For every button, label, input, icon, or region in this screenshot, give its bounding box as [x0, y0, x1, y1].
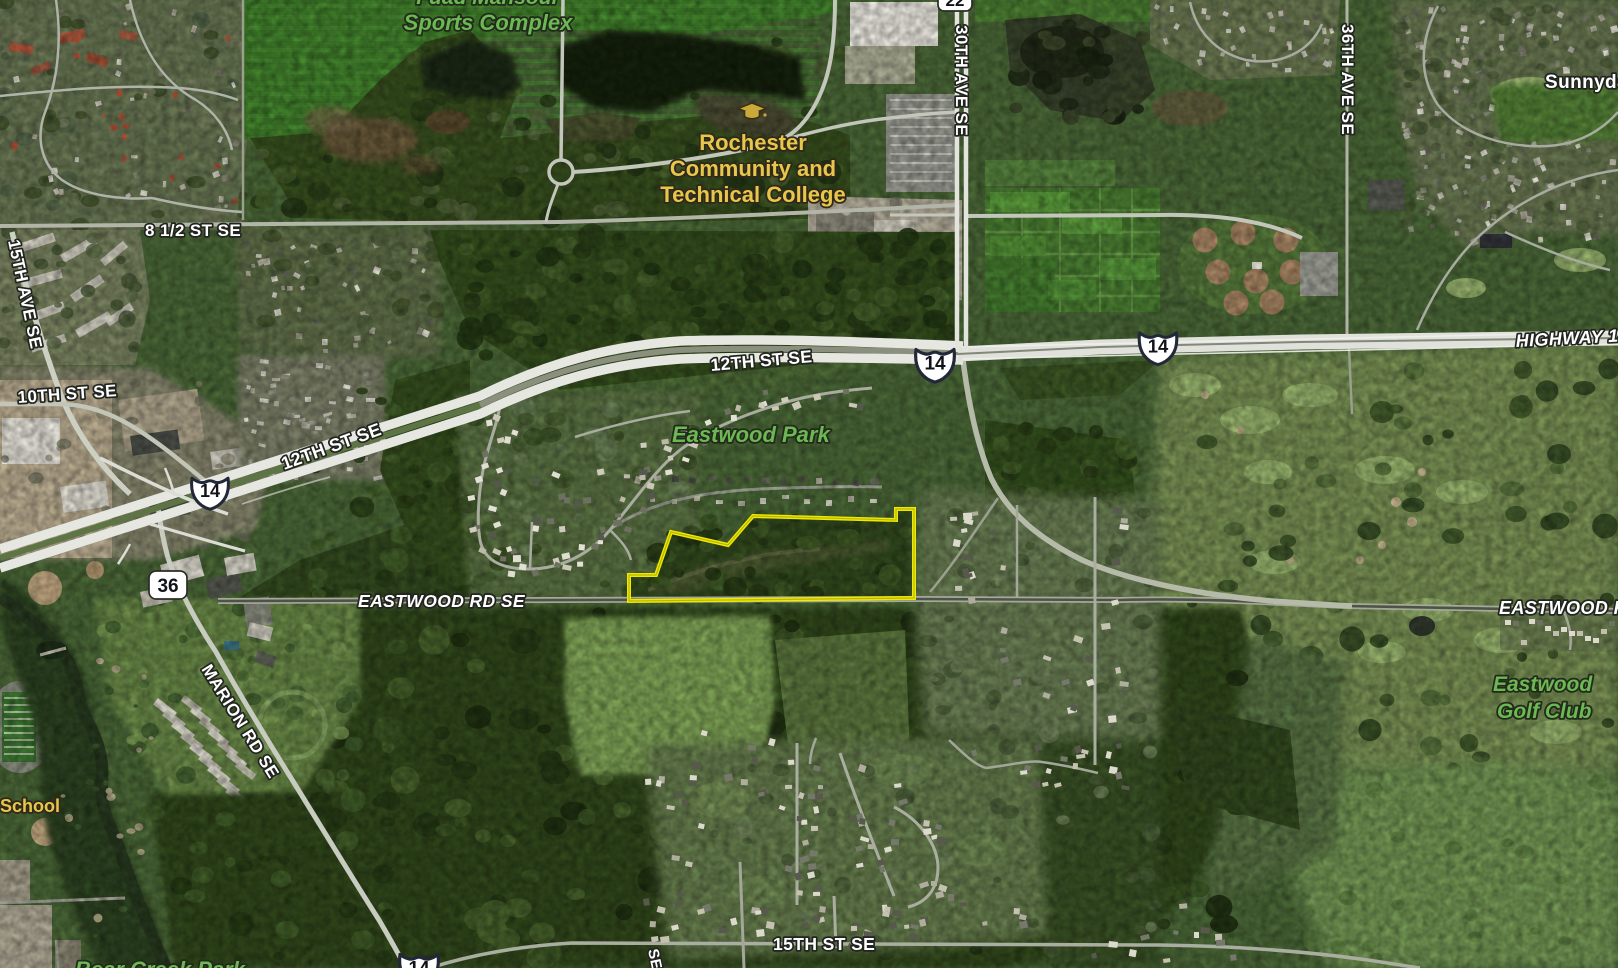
svg-text:Sunnydale: Sunnydale [1545, 72, 1618, 93]
svg-text:EASTWOOD RD S: EASTWOOD RD S [1499, 598, 1618, 618]
svg-text:36TH AVE SE: 36TH AVE SE [1338, 24, 1357, 135]
svg-text:Sports Complex: Sports Complex [404, 10, 573, 35]
svg-text:Eastwood Park: Eastwood Park [672, 422, 831, 447]
svg-text:EASTWOOD RD SE: EASTWOOD RD SE [358, 591, 526, 611]
svg-text:Rochester: Rochester [699, 130, 807, 155]
svg-text:Community and: Community and [670, 156, 836, 181]
svg-text:Bear Creek Park: Bear Creek Park [75, 957, 247, 968]
svg-text:30TH AVE SE: 30TH AVE SE [952, 25, 971, 136]
svg-text:36: 36 [157, 576, 178, 597]
svg-text:Fuad Mansour: Fuad Mansour [416, 0, 561, 9]
svg-text:Golf Club: Golf Club [1497, 700, 1592, 723]
svg-text:Technical College: Technical College [660, 182, 845, 207]
svg-text:SE: SE [644, 947, 665, 968]
svg-text:8 1/2 ST SE: 8 1/2 ST SE [145, 221, 241, 240]
svg-text:School: School [0, 796, 60, 816]
svg-text:Eastwood: Eastwood [1493, 673, 1593, 696]
svg-text:22: 22 [946, 0, 965, 10]
svg-text:15TH ST SE: 15TH ST SE [773, 934, 875, 954]
